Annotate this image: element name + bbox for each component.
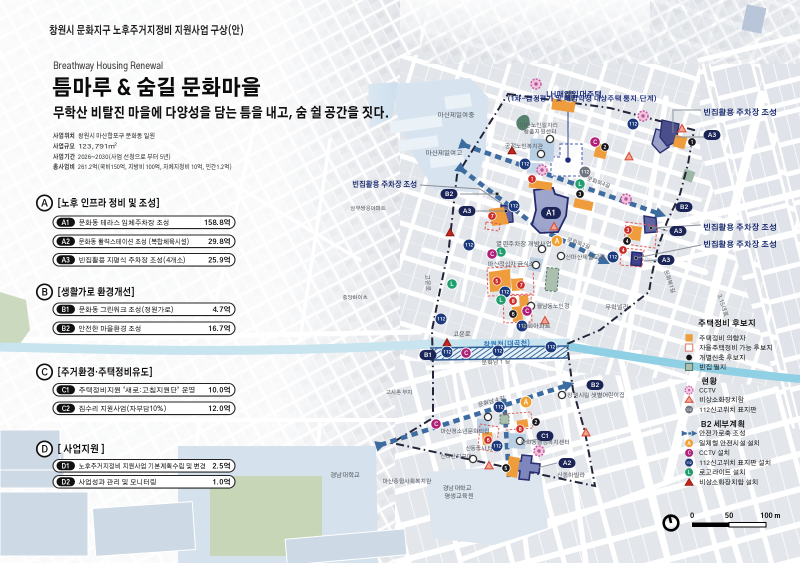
svg-text:마산제일여고: 마산제일여고 — [426, 149, 463, 157]
svg-text:D2: D2 — [62, 479, 70, 486]
svg-text:6: 6 — [487, 438, 490, 444]
svg-text:창원시 마산합포구 문화동 일원: 창원시 마산합포구 문화동 일원 — [78, 132, 155, 140]
svg-text:B2 세부계획: B2 세부계획 — [701, 420, 745, 429]
svg-text:A1: A1 — [61, 220, 70, 227]
svg-text:D1: D1 — [62, 463, 70, 470]
svg-text:5: 5 — [496, 279, 499, 285]
svg-text:L: L — [450, 281, 453, 288]
svg-text:비상소화장치함 설치: 비상소화장치함 설치 — [699, 478, 758, 486]
svg-text:2: 2 — [604, 145, 607, 151]
svg-text:B1: B1 — [424, 352, 432, 359]
svg-text:25.9억: 25.9억 — [208, 256, 230, 265]
svg-text:123,791㎡: 123,791㎡ — [78, 143, 117, 151]
svg-text:112: 112 — [437, 317, 445, 322]
svg-text:L: L — [499, 297, 502, 304]
svg-text:C: C — [490, 251, 494, 258]
svg-text:6: 6 — [512, 312, 515, 318]
svg-text:총사업비: 총사업비 — [53, 163, 75, 171]
svg-text:창원시 문화지구 노후주거지정비 지원사업 구상(안): 창원시 문화지구 노후주거지정비 지원사업 구상(안) — [49, 23, 244, 37]
svg-text:A1: A1 — [545, 211, 555, 218]
svg-text:문화동 테라스 입체주차장 조성: 문화동 테라스 입체주차장 조성 — [79, 219, 170, 227]
svg-text:B1: B1 — [62, 307, 70, 314]
svg-text:[노후 인프라 정비 및 조성]: [노후 인프라 정비 및 조성] — [57, 198, 160, 210]
svg-text:3: 3 — [579, 192, 582, 198]
svg-text:빈집활용 주차장 조성: 빈집활용 주차장 조성 — [703, 240, 777, 249]
svg-text:사업기간: 사업기간 — [53, 153, 75, 161]
svg-text:경남대학교: 경남대학교 — [330, 471, 360, 479]
svg-text:112: 112 — [493, 444, 501, 449]
svg-text:안전한 마을환경 조성: 안전한 마을환경 조성 — [79, 325, 142, 333]
svg-text:빈집활용 주차장 조성: 빈집활용 주차장 조성 — [703, 108, 777, 117]
svg-text:A: A — [40, 198, 48, 208]
svg-text:112: 112 — [495, 405, 503, 410]
svg-text:고시촌 부지: 고시촌 부지 — [386, 389, 413, 396]
svg-text:5: 5 — [505, 466, 508, 472]
svg-text:신동아빌라: 신동아빌라 — [557, 472, 586, 479]
svg-text:7: 7 — [491, 214, 494, 220]
svg-text:112: 112 — [510, 204, 518, 209]
svg-text:112: 112 — [581, 170, 589, 175]
svg-text:현황: 현황 — [701, 377, 717, 386]
svg-text:틈마루 & 숨길 문화마을: 틈마루 & 숨길 문화마을 — [52, 76, 261, 100]
svg-text:B2: B2 — [591, 382, 599, 389]
svg-text:사업규모: 사업규모 — [53, 143, 75, 151]
svg-text:4.7억: 4.7억 — [212, 305, 230, 314]
svg-text:마산적십자 급식소: 마산적십자 급식소 — [488, 260, 535, 268]
svg-text:로고라이트 설치: 로고라이트 설치 — [699, 469, 746, 477]
svg-text:C2: C2 — [62, 406, 70, 413]
svg-text:비상소화장치함: 비상소화장치함 — [699, 396, 744, 404]
svg-text:B2: B2 — [445, 191, 453, 198]
svg-text:112: 112 — [521, 162, 529, 167]
svg-text:2: 2 — [535, 420, 538, 426]
svg-text:B2: B2 — [62, 326, 70, 333]
svg-text:112: 112 — [685, 408, 692, 412]
svg-text:1: 1 — [691, 140, 694, 146]
svg-text:1.0억: 1.0억 — [212, 478, 230, 487]
svg-text:무학빌라: 무학빌라 — [605, 303, 629, 311]
svg-text:열린주차장 개방사업: 열린주차장 개방사업 — [496, 240, 552, 248]
svg-text:빈집활용 주차장 조성: 빈집활용 주차장 조성 — [703, 223, 777, 232]
svg-text:112신고위치 표지판: 112신고위치 표지판 — [699, 406, 757, 414]
svg-text:A3: A3 — [61, 257, 70, 264]
svg-text:L: L — [578, 181, 581, 188]
svg-text:112: 112 — [609, 255, 617, 260]
svg-text:[주거환경·주택정비유도]: [주거환경·주택정비유도] — [57, 367, 153, 379]
svg-text:A2: A2 — [61, 239, 70, 246]
svg-text:2.5억: 2.5억 — [212, 462, 230, 471]
svg-text:노후주거지정비 지원사업 기본계획수립 및 변경: 노후주거지정비 지원사업 기본계획수립 및 변경 — [79, 463, 206, 471]
svg-text:A: A — [523, 399, 529, 406]
svg-text:CCTV 설치: CCTV 설치 — [699, 449, 730, 457]
svg-text:A3: A3 — [462, 208, 471, 215]
svg-text:신마산지구대: 신마산지구대 — [440, 453, 471, 460]
svg-text:B: B — [41, 287, 48, 297]
svg-text:경남대학교: 경남대학교 — [442, 484, 471, 492]
svg-text:12.0억: 12.0억 — [208, 404, 230, 413]
svg-text:(1차-감정평가 및 매입약정 대상주택 통지.단계): (1차-감정평가 및 매입약정 대상주택 통지.단계) — [507, 94, 657, 103]
svg-text:빈집 필지: 빈집 필지 — [699, 364, 726, 372]
svg-text:100 m: 100 m — [760, 513, 781, 520]
svg-text:29.8억: 29.8억 — [208, 237, 230, 246]
svg-text:평화아파트: 평화아파트 — [521, 323, 550, 330]
svg-text:주택정비 의향자: 주택정비 의향자 — [699, 334, 746, 342]
svg-text:창출지원센터: 창출지원센터 — [523, 129, 557, 136]
svg-text:A3: A3 — [707, 132, 716, 139]
svg-text:C: C — [41, 367, 48, 377]
svg-text:C1: C1 — [62, 387, 70, 394]
svg-text:C: C — [593, 139, 597, 146]
svg-text:112: 112 — [501, 290, 509, 295]
svg-text:L: L — [688, 470, 691, 475]
svg-text:삼부쌍용아파트: 삼부쌍용아파트 — [350, 205, 385, 212]
svg-text:16.7억: 16.7억 — [208, 324, 230, 333]
svg-text:D: D — [41, 444, 48, 454]
svg-text:창원시립 샛별어린이집: 창원시립 샛별어린이집 — [567, 391, 625, 399]
svg-text:공정노인복지관: 공정노인복지관 — [505, 143, 544, 150]
svg-text:10.0억: 10.0억 — [208, 386, 230, 395]
svg-text:A: A — [554, 238, 560, 245]
svg-text:중앙하이츠: 중앙하이츠 — [342, 295, 367, 301]
svg-text:C: C — [525, 308, 529, 315]
svg-text:빈집활용 주차장 조성: 빈집활용 주차장 조성 — [352, 180, 417, 189]
svg-text:마산청소년문화의집: 마산청소년문화의집 — [441, 428, 491, 435]
svg-text:1: 1 — [531, 177, 534, 183]
svg-text:사업성과 관리 및 모니터링: 사업성과 관리 및 모니터링 — [79, 479, 157, 487]
svg-text:112: 112 — [629, 122, 637, 127]
svg-text:마산종합사회복지관: 마산종합사회복지관 — [383, 478, 433, 485]
svg-text:[ 사업지원 ]: [ 사업지원 ] — [57, 444, 105, 456]
svg-text:112: 112 — [547, 345, 555, 350]
svg-text:158.8억: 158.8억 — [204, 218, 231, 227]
svg-text:고운로: 고운로 — [453, 331, 471, 339]
svg-text:[생활가로 환경개선]: [생활가로 환경개선] — [57, 287, 135, 299]
svg-text:0: 0 — [690, 513, 694, 520]
svg-text:L: L — [499, 249, 502, 256]
svg-text:112신고위치 표지판 설치: 112신고위치 표지판 설치 — [699, 459, 771, 467]
svg-text:CCTV: CCTV — [699, 388, 716, 395]
svg-text:사업위치: 사업위치 — [53, 132, 75, 140]
svg-text:월남동노인정: 월남동노인정 — [537, 303, 570, 310]
svg-text:50: 50 — [725, 513, 733, 520]
svg-text:C: C — [464, 350, 468, 357]
svg-text:7: 7 — [520, 283, 523, 289]
svg-text:개별신축 후보지: 개별신축 후보지 — [699, 354, 746, 362]
svg-text:112: 112 — [465, 243, 473, 248]
svg-text:C1: C1 — [541, 433, 549, 440]
svg-text:주택정비 후보지: 주택정비 후보지 — [698, 319, 756, 328]
svg-text:안전가로축 조성: 안전가로축 조성 — [699, 430, 746, 438]
svg-text:A3: A3 — [661, 257, 670, 264]
svg-text:Breathway Housing Renewal: Breathway Housing Renewal — [53, 61, 163, 71]
svg-text:3: 3 — [627, 228, 630, 234]
svg-text:평생교육원: 평생교육원 — [444, 492, 473, 500]
svg-text:신동공사 터: 신동공사 터 — [465, 445, 493, 452]
svg-text:마산제일여중: 마산제일여중 — [438, 111, 475, 119]
svg-text:마산노인일자리: 마산노인일자리 — [520, 122, 558, 129]
svg-text:B2: B2 — [680, 204, 688, 211]
svg-text:112: 112 — [443, 350, 451, 355]
svg-text:신마산제일교회: 신마산제일교회 — [565, 254, 605, 261]
svg-text:112: 112 — [685, 461, 692, 465]
svg-text:A2: A2 — [562, 460, 571, 467]
svg-text:무학산 비탈진 마을에 다양성을 담는 틈을 내고, 숨 쉴: 무학산 비탈진 마을에 다양성을 담는 틈을 내고, 숨 쉴 공간을 짓다. — [53, 106, 389, 121]
svg-text:A3: A3 — [673, 228, 682, 235]
svg-text:C: C — [434, 421, 438, 428]
svg-text:일체형 안전시설 설치: 일체형 안전시설 설치 — [699, 440, 760, 448]
svg-text:자율주택정비 가능 후보지: 자율주택정비 가능 후보지 — [699, 344, 773, 352]
svg-text:112: 112 — [494, 349, 502, 354]
